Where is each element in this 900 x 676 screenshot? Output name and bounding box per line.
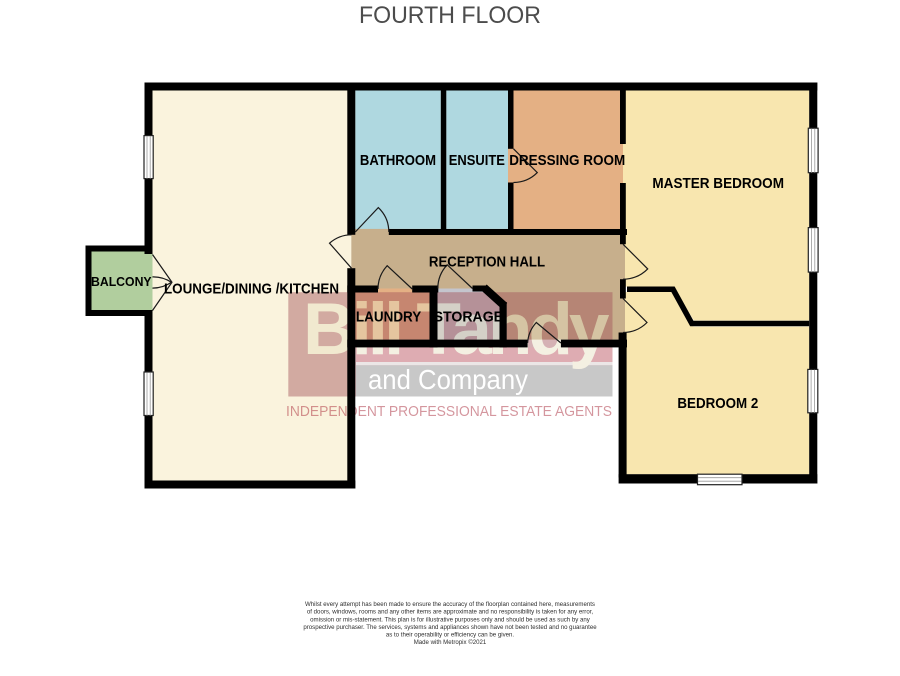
svg-text:ENSUITE: ENSUITE <box>449 152 505 169</box>
svg-text:Made with Metropix ©2021: Made with Metropix ©2021 <box>414 639 487 646</box>
svg-text:RECEPTION HALL: RECEPTION HALL <box>429 254 545 271</box>
svg-text:LOUNGE/DINING /KITCHEN: LOUNGE/DINING /KITCHEN <box>164 280 339 297</box>
svg-text:BEDROOM 2: BEDROOM 2 <box>677 395 758 412</box>
svg-text:prospective purchaser. The ser: prospective purchaser. The services, sys… <box>303 624 597 631</box>
svg-text:of doors, windows, rooms and a: of doors, windows, rooms and any other i… <box>307 609 594 616</box>
svg-text:omission or mis-statement. Thi: omission or mis-statement. This plan is … <box>310 616 591 623</box>
svg-text:DRESSING ROOM: DRESSING ROOM <box>509 152 625 169</box>
svg-text:and Company: and Company <box>368 364 528 395</box>
svg-text:Whilst every attempt has been: Whilst every attempt has been made to en… <box>305 601 595 608</box>
svg-text:MASTER BEDROOM: MASTER BEDROOM <box>652 175 784 192</box>
svg-text:STORAGE: STORAGE <box>434 308 504 325</box>
svg-text:INDEPENDENT PROFESSIONAL ESTAT: INDEPENDENT PROFESSIONAL ESTATE AGENTS <box>286 404 612 420</box>
svg-text:as to their operability or eff: as to their operability or efficiency ca… <box>386 632 515 639</box>
svg-text:FOURTH FLOOR: FOURTH FLOOR <box>359 2 541 29</box>
svg-text:LAUNDRY: LAUNDRY <box>356 308 421 325</box>
svg-text:BALCONY: BALCONY <box>91 275 152 289</box>
svg-text:BATHROOM: BATHROOM <box>360 152 436 169</box>
